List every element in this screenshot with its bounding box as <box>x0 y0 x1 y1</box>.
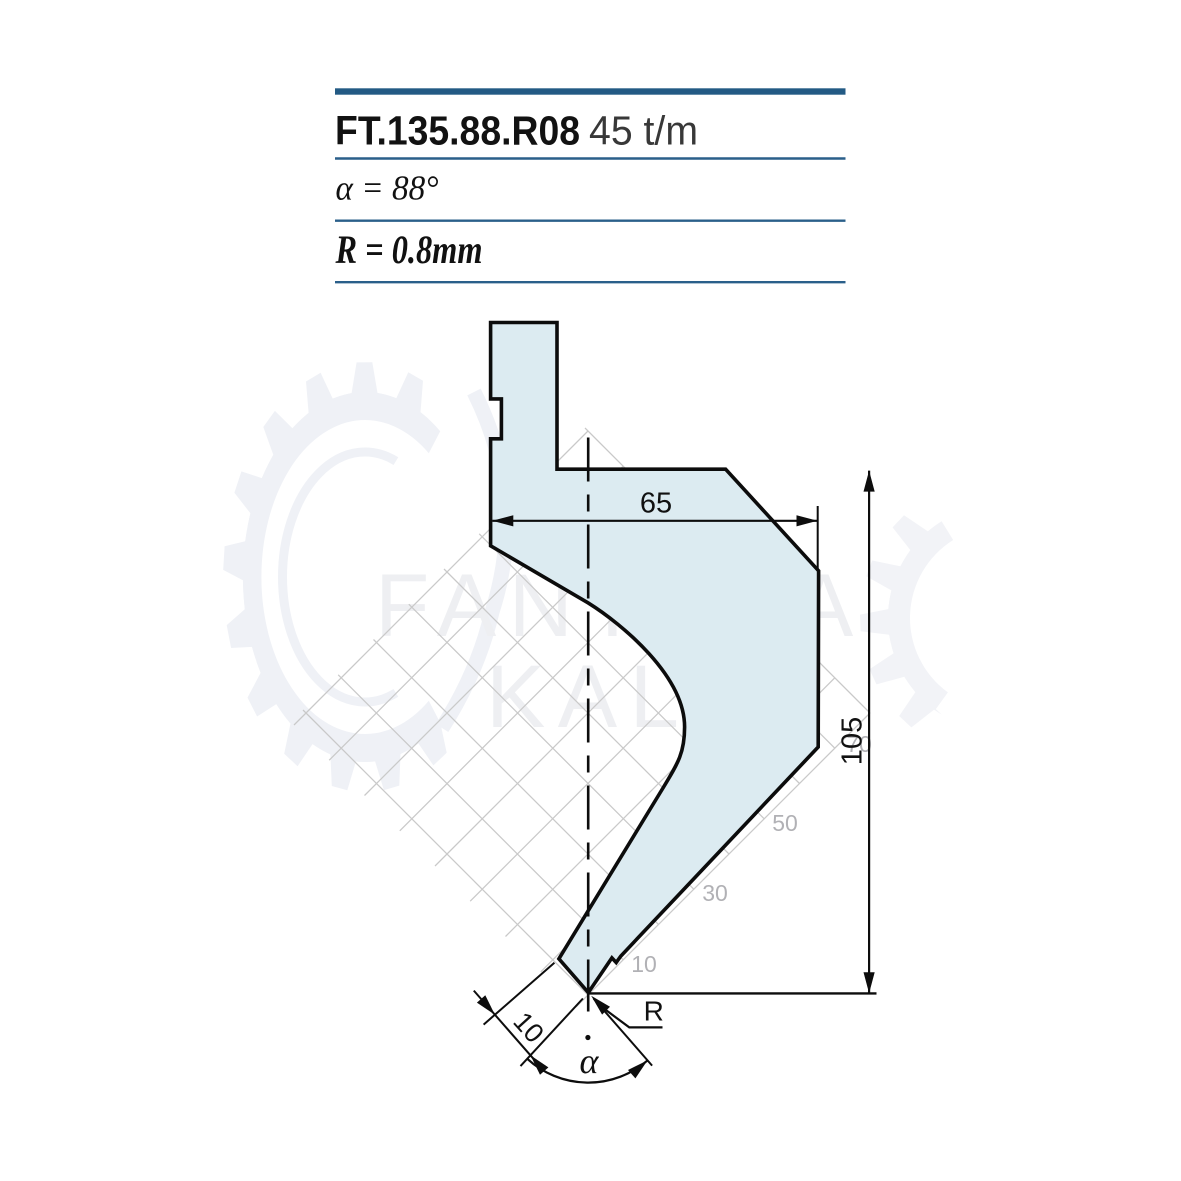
svg-text:65: 65 <box>640 488 672 520</box>
svg-text:α = 88°: α = 88° <box>336 169 439 208</box>
svg-text:α: α <box>580 1041 600 1081</box>
svg-text:FT.135.88.R08: FT.135.88.R08 <box>335 108 580 154</box>
svg-text:50: 50 <box>772 810 798 836</box>
svg-text:30: 30 <box>702 880 728 906</box>
svg-text:R = 0.8mm: R = 0.8mm <box>335 227 483 272</box>
svg-text:10: 10 <box>631 951 657 977</box>
svg-text:105: 105 <box>837 717 869 765</box>
svg-text:R: R <box>644 996 664 1027</box>
svg-text:45 t/m: 45 t/m <box>589 108 698 154</box>
